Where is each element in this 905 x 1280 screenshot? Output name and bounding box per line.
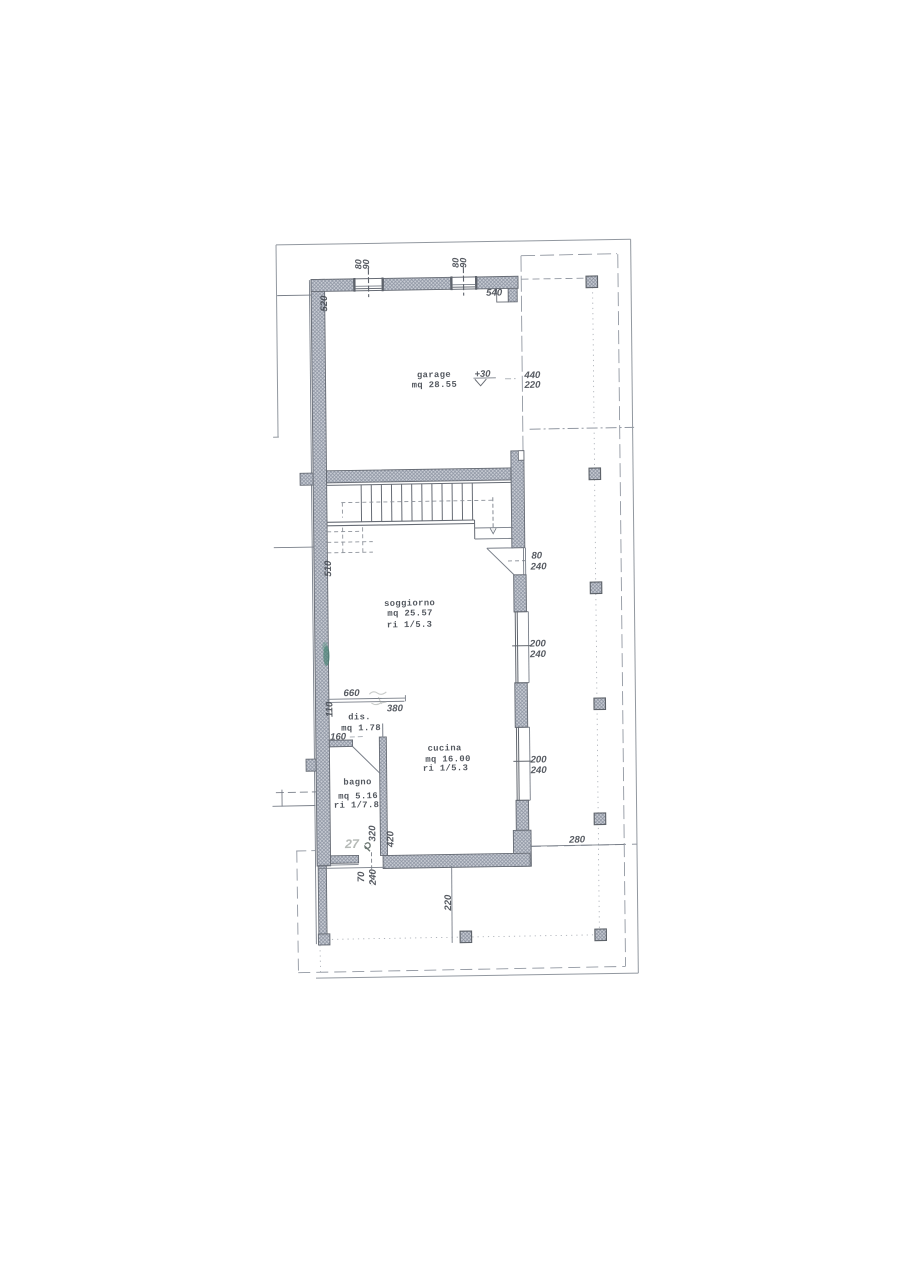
svg-text:90: 90 <box>361 259 371 269</box>
svg-text:240: 240 <box>529 649 547 660</box>
svg-text:240: 240 <box>368 868 379 886</box>
svg-text:70: 70 <box>356 871 367 883</box>
svg-text:110: 110 <box>324 701 335 717</box>
svg-text:520: 520 <box>319 295 330 312</box>
svg-text:320: 320 <box>367 825 378 842</box>
svg-text:420: 420 <box>385 830 396 848</box>
svg-text:ri 1/5.3: ri 1/5.3 <box>423 763 469 774</box>
svg-text:ri 1/7.8: ri 1/7.8 <box>334 800 380 811</box>
svg-text:mq 25.57: mq 25.57 <box>387 608 433 619</box>
svg-text:200: 200 <box>530 754 548 765</box>
svg-text:200: 200 <box>529 638 547 649</box>
svg-text:mq 28.55: mq 28.55 <box>412 380 458 391</box>
svg-text:cucina: cucina <box>428 743 462 754</box>
svg-text:dis.: dis. <box>348 712 371 722</box>
svg-text:280: 280 <box>568 834 586 845</box>
svg-text:220: 220 <box>523 380 541 391</box>
svg-text:240: 240 <box>529 561 547 572</box>
svg-text:ri 1/5.3: ri 1/5.3 <box>387 620 433 631</box>
svg-text:510: 510 <box>323 560 334 577</box>
svg-text:+30: +30 <box>474 368 491 379</box>
svg-text:660: 660 <box>343 688 360 699</box>
svg-text:220: 220 <box>443 894 454 912</box>
svg-text:80: 80 <box>531 550 542 561</box>
svg-text:bagno: bagno <box>343 777 372 787</box>
svg-text:540: 540 <box>486 288 503 299</box>
svg-text:90: 90 <box>458 258 468 268</box>
svg-text:27: 27 <box>344 837 360 851</box>
svg-text:mq 1.78: mq 1.78 <box>341 723 381 734</box>
svg-text:380: 380 <box>387 703 404 714</box>
svg-text:240: 240 <box>530 765 548 776</box>
svg-text:160: 160 <box>330 732 347 743</box>
svg-text:garage: garage <box>417 370 451 381</box>
